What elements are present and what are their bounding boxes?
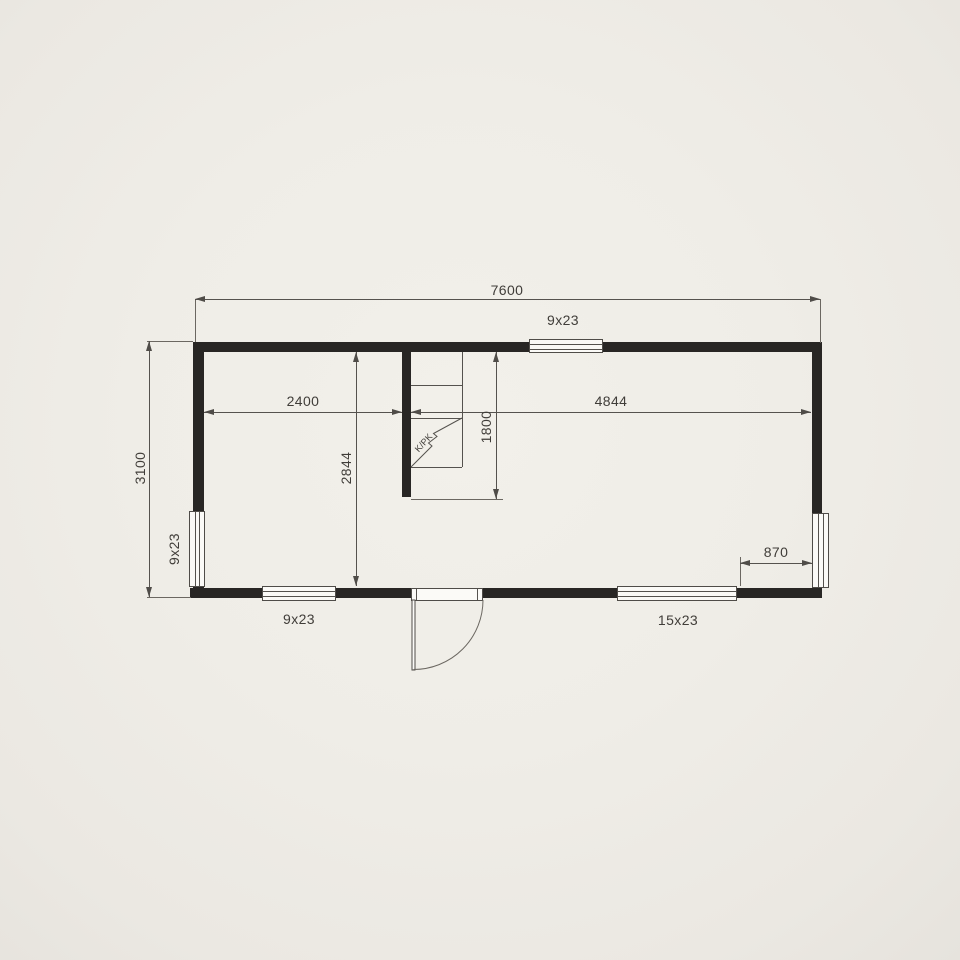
wall-top xyxy=(193,342,822,352)
dimension-label-main-room-width: 4844 xyxy=(595,394,628,408)
kitchen-unit-divider-1 xyxy=(411,385,462,386)
dimension-label-room-depth: 2844 xyxy=(339,452,353,485)
arrowhead xyxy=(493,489,499,499)
arrowhead xyxy=(802,560,812,566)
arrowhead xyxy=(353,576,359,586)
window-right xyxy=(812,513,829,588)
dimension-label-kitchen-recess-depth: 1800 xyxy=(479,411,493,444)
dimension-label-left-room-width: 2400 xyxy=(287,394,320,408)
dimension-line-3100 xyxy=(149,341,150,597)
kitchen-unit-right-edge xyxy=(462,352,463,467)
arrowhead xyxy=(411,409,421,415)
window-label-top: 9x23 xyxy=(547,313,579,327)
dimension-label-right-opening-offset: 870 xyxy=(764,545,789,559)
arrowhead xyxy=(353,352,359,362)
extension-line-3100-bottom xyxy=(147,597,191,598)
door-leaf-and-swing-arc xyxy=(409,600,485,674)
dimension-label-overall-depth: 3100 xyxy=(133,452,147,485)
dimension-label-overall-width: 7600 xyxy=(491,283,524,297)
extension-line-3100-top xyxy=(147,341,193,342)
dimension-line-1800 xyxy=(496,352,497,499)
arrowhead xyxy=(801,409,811,415)
arrowhead xyxy=(195,296,205,302)
dimension-line-7600 xyxy=(195,299,820,300)
arrowhead xyxy=(146,341,152,351)
dimension-line-2400 xyxy=(204,412,402,413)
arrowhead xyxy=(740,560,750,566)
floor-plan-canvas: K/PK 7600 xyxy=(0,0,960,960)
window-label-left: 9x23 xyxy=(167,533,181,565)
kitchen-unit-bottom-edge xyxy=(411,467,462,468)
arrowhead xyxy=(146,587,152,597)
window-left xyxy=(189,511,205,587)
extension-line-7600-left xyxy=(195,299,196,342)
window-label-bottom-right: 15x23 xyxy=(658,613,698,627)
arrowhead xyxy=(810,296,820,302)
extension-line-1800-bottom xyxy=(411,499,503,500)
extension-line-7600-right xyxy=(820,299,821,343)
dimension-line-4844 xyxy=(411,412,811,413)
window-bottom-left xyxy=(262,586,336,601)
arrowhead xyxy=(392,409,402,415)
arrowhead xyxy=(493,352,499,362)
arrowhead xyxy=(204,409,214,415)
window-label-bottom-left: 9x23 xyxy=(283,612,315,626)
window-top xyxy=(529,339,603,353)
window-bottom-right xyxy=(617,586,737,601)
wall-interior-partition xyxy=(402,352,411,497)
dimension-line-2844 xyxy=(356,352,357,586)
